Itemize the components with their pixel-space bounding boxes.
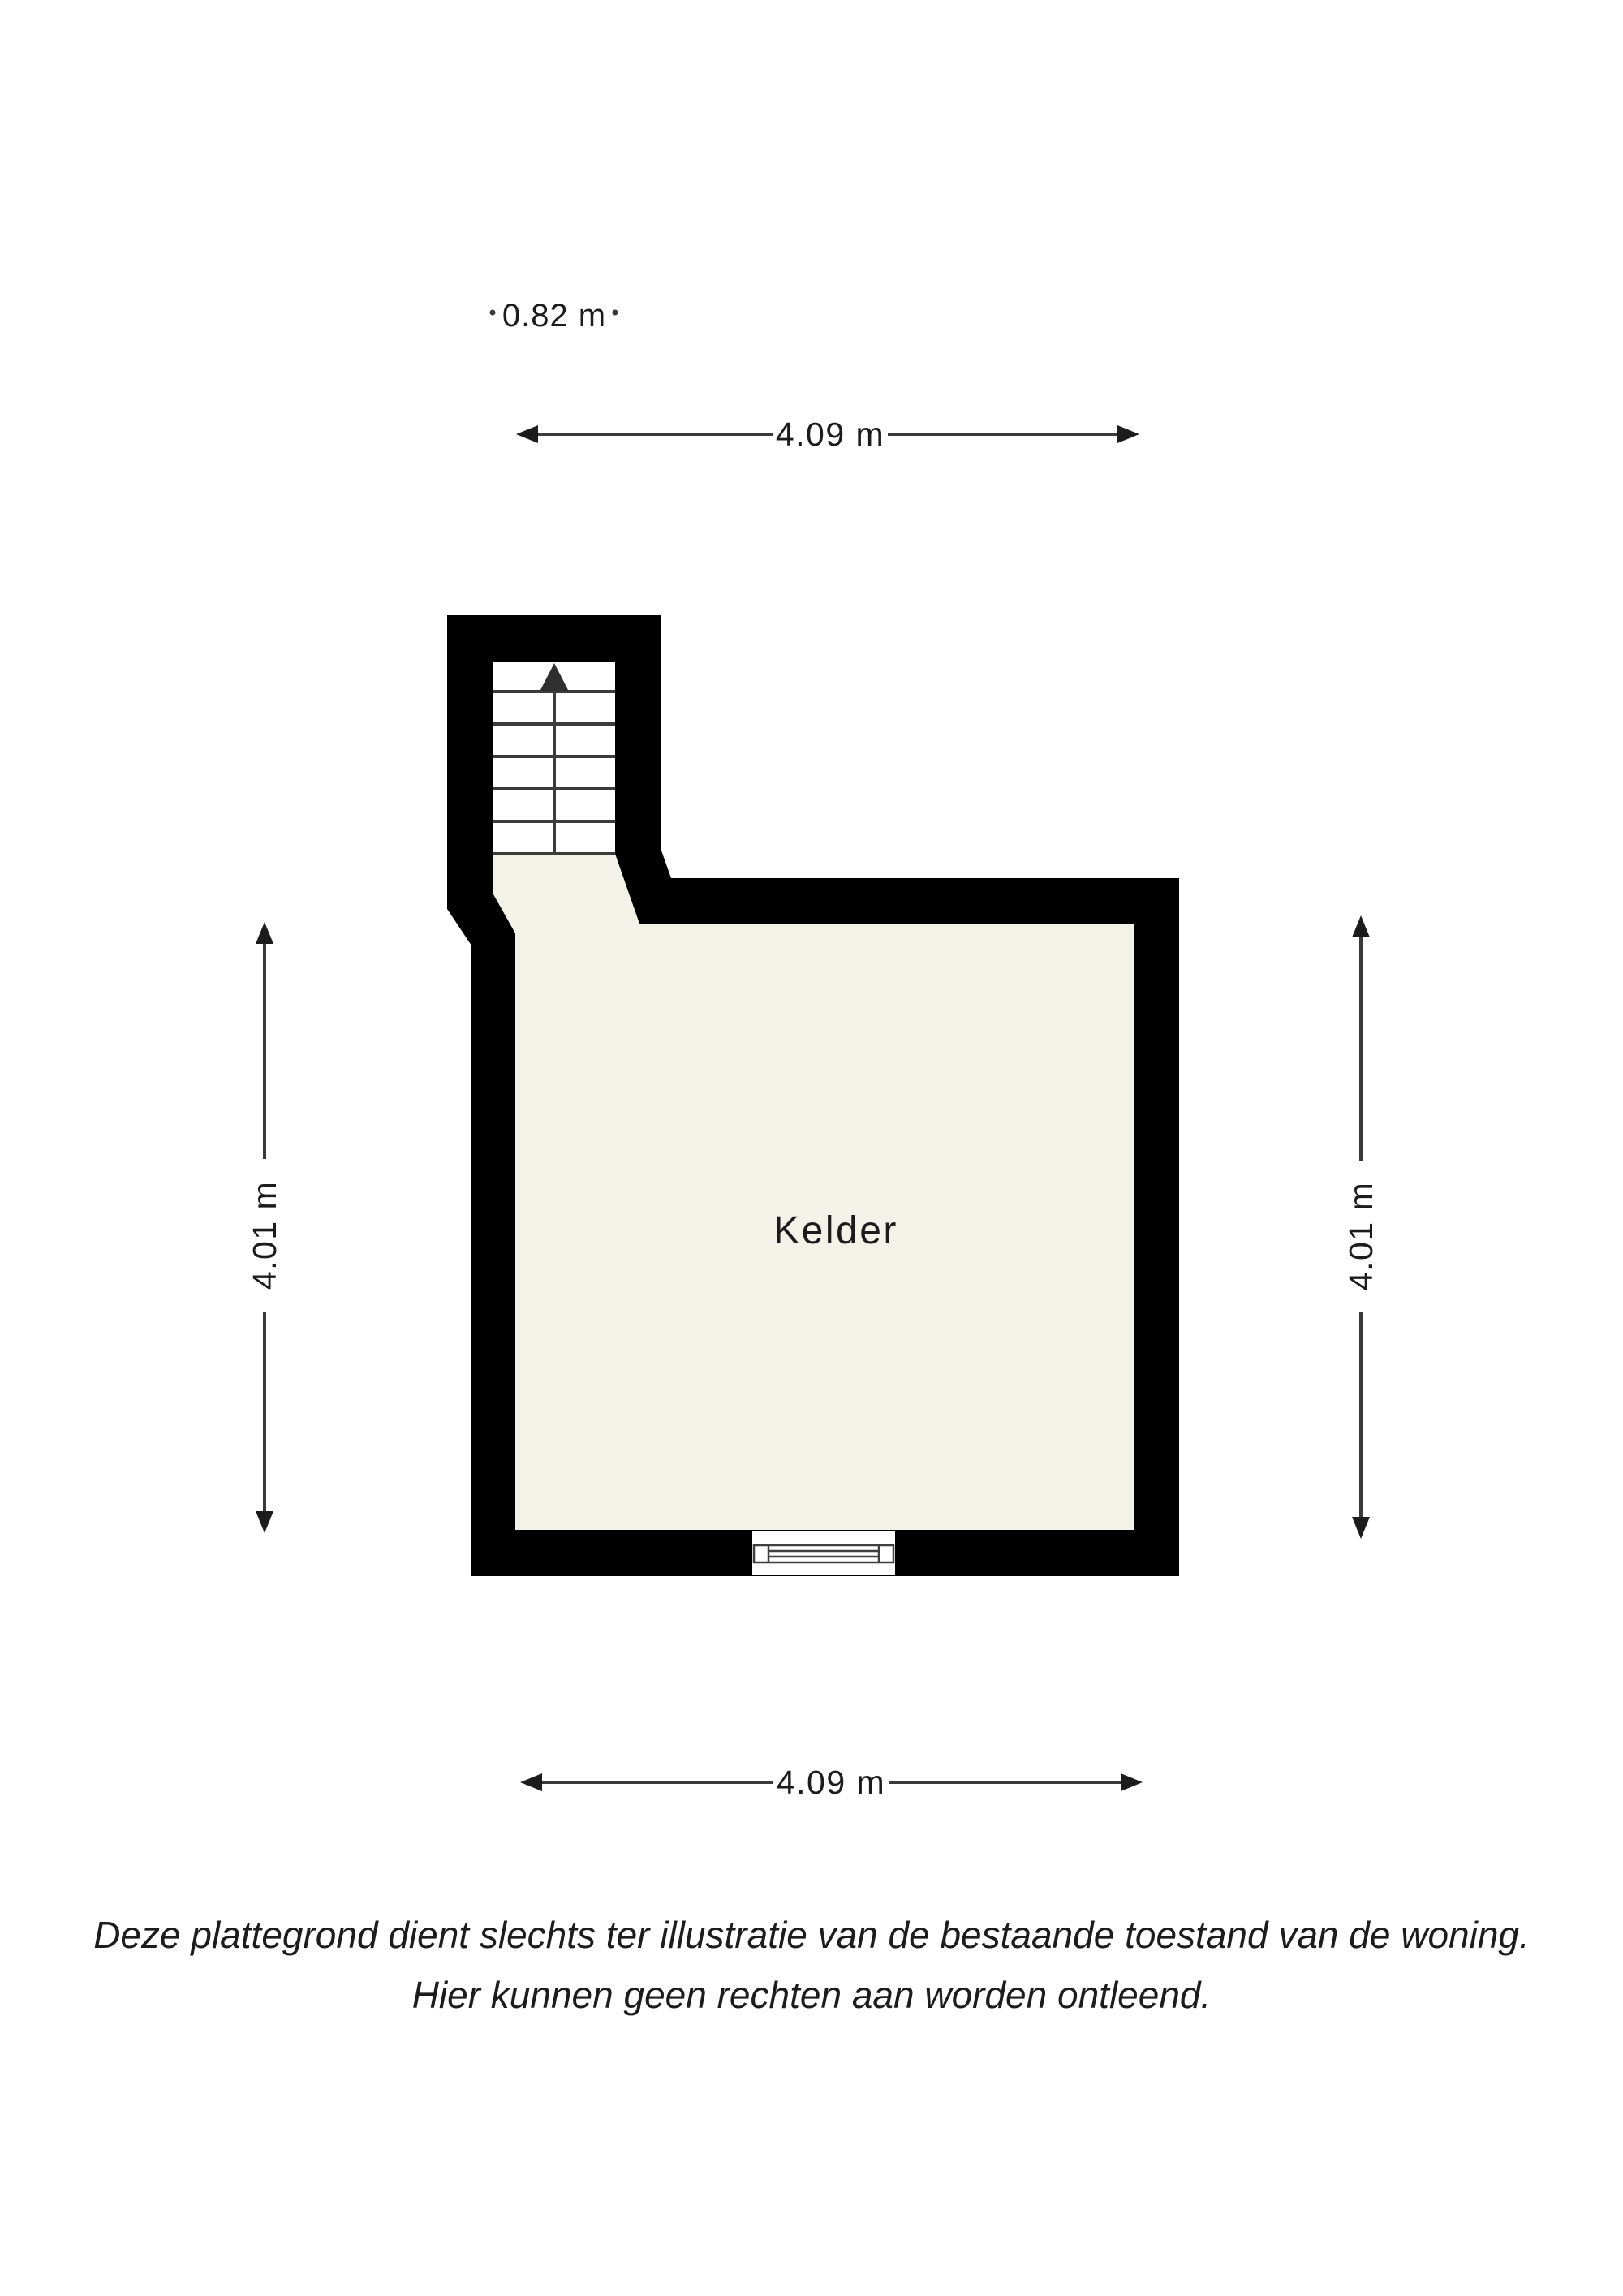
room-label: Kelder <box>773 1209 898 1252</box>
dimension-label: 0.82 m <box>502 298 606 334</box>
floorplan-drawing: 0.82 m 4.09 m 4.01 m <box>0 0 1623 2296</box>
dimension-stair-width: 0.82 m <box>490 298 618 334</box>
dimension-arrowhead-icon <box>1121 1773 1143 1791</box>
disclaimer-line-2: Hier kunnen geen rechten aan worden ontl… <box>412 1974 1212 2016</box>
dimension-label: 4.01 m <box>246 1181 283 1290</box>
dimension-label: 4.09 m <box>777 1764 885 1801</box>
dimension-arrowhead-icon <box>520 1773 542 1791</box>
dimension-arrowhead-icon <box>256 922 273 944</box>
dimension-tick <box>490 310 496 316</box>
floorplan-page: 0.82 m 4.09 m 4.01 m <box>0 0 1623 2296</box>
room-floor <box>493 854 1134 1530</box>
dimension-arrowhead-icon <box>1352 915 1370 937</box>
dimension-arrowhead-icon <box>516 425 538 443</box>
dimension-arrowhead-icon <box>1117 425 1139 443</box>
dimension-right-height: 4.01 m <box>1342 915 1380 1539</box>
window-symbol <box>754 1545 893 1562</box>
dimension-label: 4.01 m <box>1342 1182 1380 1290</box>
dimension-label: 4.09 m <box>776 416 885 453</box>
dimension-tick <box>613 310 618 316</box>
dimension-arrowhead-icon <box>1352 1517 1370 1539</box>
dimension-arrowhead-icon <box>256 1511 273 1533</box>
dimension-left-height: 4.01 m <box>246 922 283 1533</box>
disclaimer-line-1: Deze plattegrond dient slechts ter illus… <box>93 1914 1530 1956</box>
dimension-bottom-width: 4.09 m <box>520 1764 1143 1801</box>
dimension-top-width: 4.09 m <box>516 416 1139 453</box>
